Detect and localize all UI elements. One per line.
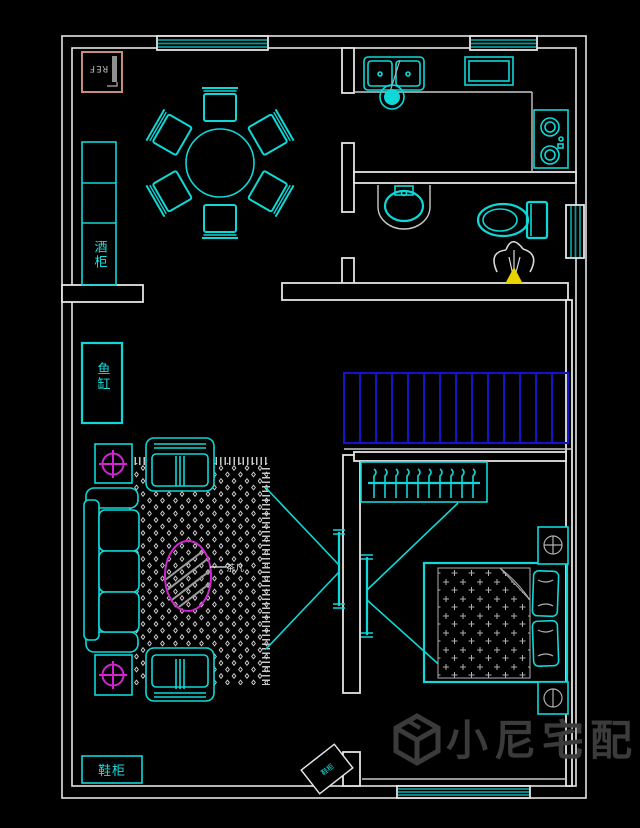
coffee-table-tag: 茶几 [226, 562, 244, 574]
fish-tank: 鱼缸 [82, 343, 122, 423]
dining-chair [202, 88, 238, 121]
pillow [532, 621, 559, 667]
floor-drain-plant-icon [494, 242, 534, 284]
wall-bedroom-top [354, 452, 566, 461]
pillow [532, 571, 559, 617]
dining-chair [247, 169, 294, 217]
bedroom [361, 462, 568, 714]
gas-stove [534, 110, 568, 168]
speaker-top [95, 444, 132, 483]
shoe-cabinet: 鞋柜 [82, 756, 142, 783]
watermark: 小尼宅配 [396, 716, 638, 765]
counter-appliance [465, 57, 513, 85]
wall-bath-hall [282, 283, 568, 300]
floor-plan-canvas: REF 酒柜 鱼缸 [0, 0, 640, 828]
bed [424, 563, 567, 682]
wall-living-bedroom [343, 455, 360, 693]
window-top-right [470, 36, 537, 50]
wall-dining-living [62, 285, 143, 302]
toilet [478, 202, 547, 238]
dining-room: REF 酒柜 鱼缸 [82, 52, 294, 423]
nightstand-bottom [538, 682, 568, 714]
watermark-brand: 小尼宅配 [446, 716, 638, 765]
dining-chair [146, 109, 193, 157]
fridge-label: REF [89, 63, 108, 73]
bathroom [378, 185, 547, 284]
tv-view-lines [266, 488, 339, 649]
sofa [84, 488, 139, 652]
wine-cabinet-label: 酒柜 [92, 240, 108, 270]
speaker-bottom [95, 655, 132, 695]
window-bottom [397, 786, 530, 798]
floor-plan-drawing: REF 酒柜 鱼缸 [0, 0, 640, 828]
armchair-top [146, 438, 214, 491]
refrigerator: REF [82, 52, 122, 92]
tv-living [266, 488, 345, 649]
wall-kitchen-top [342, 48, 354, 93]
dining-table [186, 129, 254, 197]
bathroom-sink [378, 185, 430, 229]
wardrobe [361, 462, 487, 502]
faucet-icon [384, 89, 400, 105]
stairs [344, 373, 568, 443]
shoe-cabinet-label: 鞋柜 [98, 763, 126, 779]
fish-tank-label: 鱼缸 [95, 361, 111, 392]
window-right [566, 205, 584, 258]
dining-chair [202, 205, 238, 238]
dining-chair [247, 109, 294, 157]
drain-highlight [505, 267, 523, 284]
window-top-left [157, 36, 268, 50]
dining-chair [146, 169, 193, 217]
kitchen-sink [364, 57, 424, 109]
nightstand-top [538, 527, 568, 564]
kitchen [364, 57, 568, 168]
wine-cabinet: 酒柜 [82, 142, 116, 285]
wall-kitchen-bath [354, 172, 576, 183]
living-room: 茶几 [84, 438, 345, 701]
wall-kitchen-mid [342, 143, 354, 212]
cube-logo-icon [396, 716, 438, 763]
armchair-bottom [146, 648, 214, 701]
